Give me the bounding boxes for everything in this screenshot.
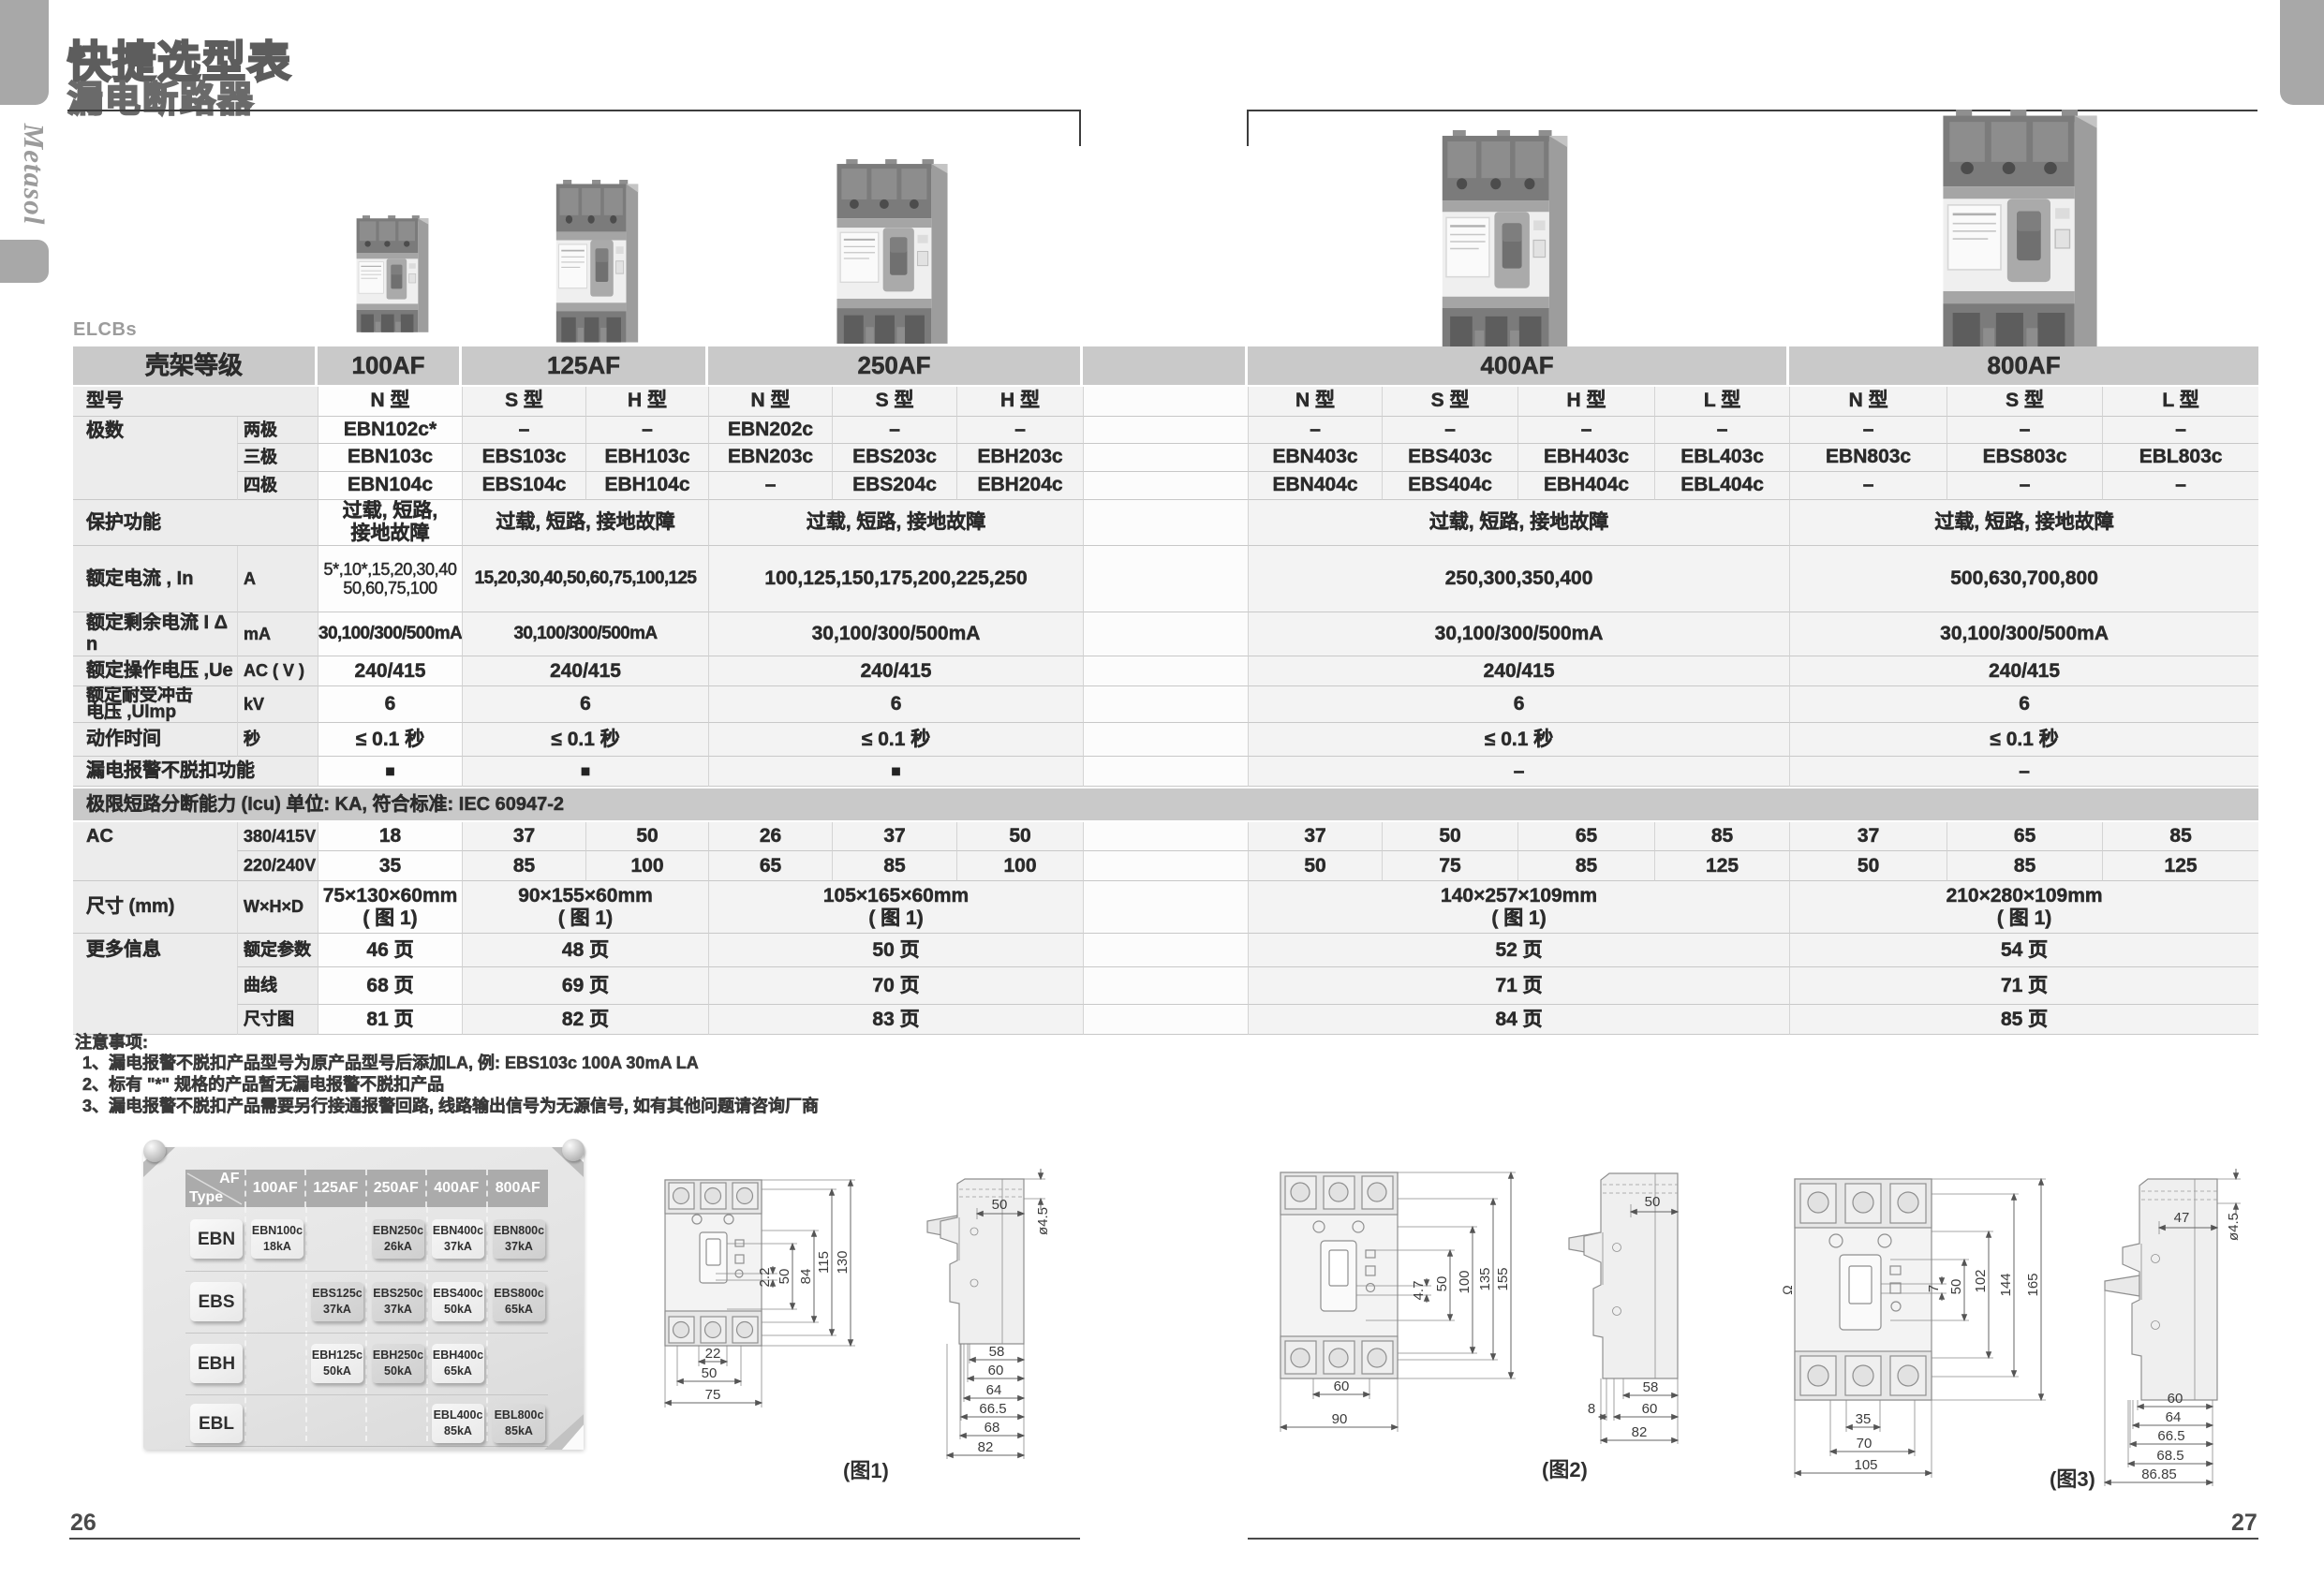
- svg-text:82: 82: [978, 1439, 994, 1455]
- svg-text:2.2: 2.2: [757, 1268, 773, 1288]
- svg-text:(图3): (图3): [2050, 1467, 2095, 1491]
- svg-text:50: 50: [1645, 1194, 1661, 1210]
- svg-text:60: 60: [2168, 1391, 2183, 1407]
- svg-text:135: 135: [1477, 1267, 1493, 1290]
- svg-text:(图1): (图1): [843, 1459, 889, 1482]
- svg-text:90: 90: [1332, 1411, 1348, 1427]
- svg-text:58: 58: [989, 1344, 1005, 1360]
- svg-text:22: 22: [705, 1346, 721, 1362]
- svg-text:64: 64: [986, 1382, 1002, 1398]
- svg-text:4.7: 4.7: [1411, 1281, 1427, 1301]
- svg-text:50: 50: [702, 1365, 718, 1381]
- svg-text:ø4.5: ø4.5: [1035, 1207, 1049, 1235]
- svg-text:66.5: 66.5: [2157, 1428, 2184, 1444]
- svg-text:(图2): (图2): [1542, 1458, 1588, 1481]
- svg-text:75: 75: [705, 1387, 721, 1403]
- svg-text:66.5: 66.5: [979, 1401, 1006, 1417]
- svg-text:84: 84: [798, 1269, 814, 1285]
- svg-text:68: 68: [984, 1420, 1000, 1436]
- svg-text:68.5: 68.5: [2156, 1448, 2183, 1464]
- svg-text:70: 70: [1857, 1436, 1873, 1452]
- svg-text:58: 58: [1643, 1379, 1659, 1395]
- svg-text:7: 7: [1926, 1285, 1942, 1292]
- svg-text:50: 50: [992, 1197, 1008, 1213]
- svg-text:47: 47: [2174, 1210, 2190, 1226]
- svg-text:50: 50: [777, 1269, 792, 1285]
- svg-text:82: 82: [1632, 1424, 1648, 1440]
- svg-text:60: 60: [1642, 1401, 1658, 1417]
- svg-text:100: 100: [1457, 1270, 1473, 1293]
- svg-text:8: 8: [1588, 1401, 1595, 1417]
- svg-text:115: 115: [816, 1251, 832, 1274]
- svg-text:155: 155: [1495, 1267, 1511, 1290]
- svg-text:50: 50: [1948, 1279, 1964, 1295]
- svg-text:102: 102: [1973, 1269, 1989, 1292]
- svg-text:ø4.5: ø4.5: [2226, 1213, 2242, 1241]
- svg-text:Ω: Ω: [1780, 1285, 1795, 1295]
- svg-text:64: 64: [2166, 1409, 2182, 1425]
- svg-text:165: 165: [2025, 1273, 2041, 1296]
- svg-text:130: 130: [835, 1250, 851, 1274]
- svg-text:105: 105: [1854, 1457, 1877, 1473]
- svg-text:86.85: 86.85: [2141, 1466, 2177, 1482]
- svg-text:35: 35: [1856, 1411, 1872, 1427]
- svg-text:50: 50: [1434, 1276, 1450, 1292]
- svg-text:60: 60: [988, 1363, 1004, 1378]
- svg-text:144: 144: [1998, 1273, 2014, 1296]
- svg-text:60: 60: [1334, 1378, 1350, 1394]
